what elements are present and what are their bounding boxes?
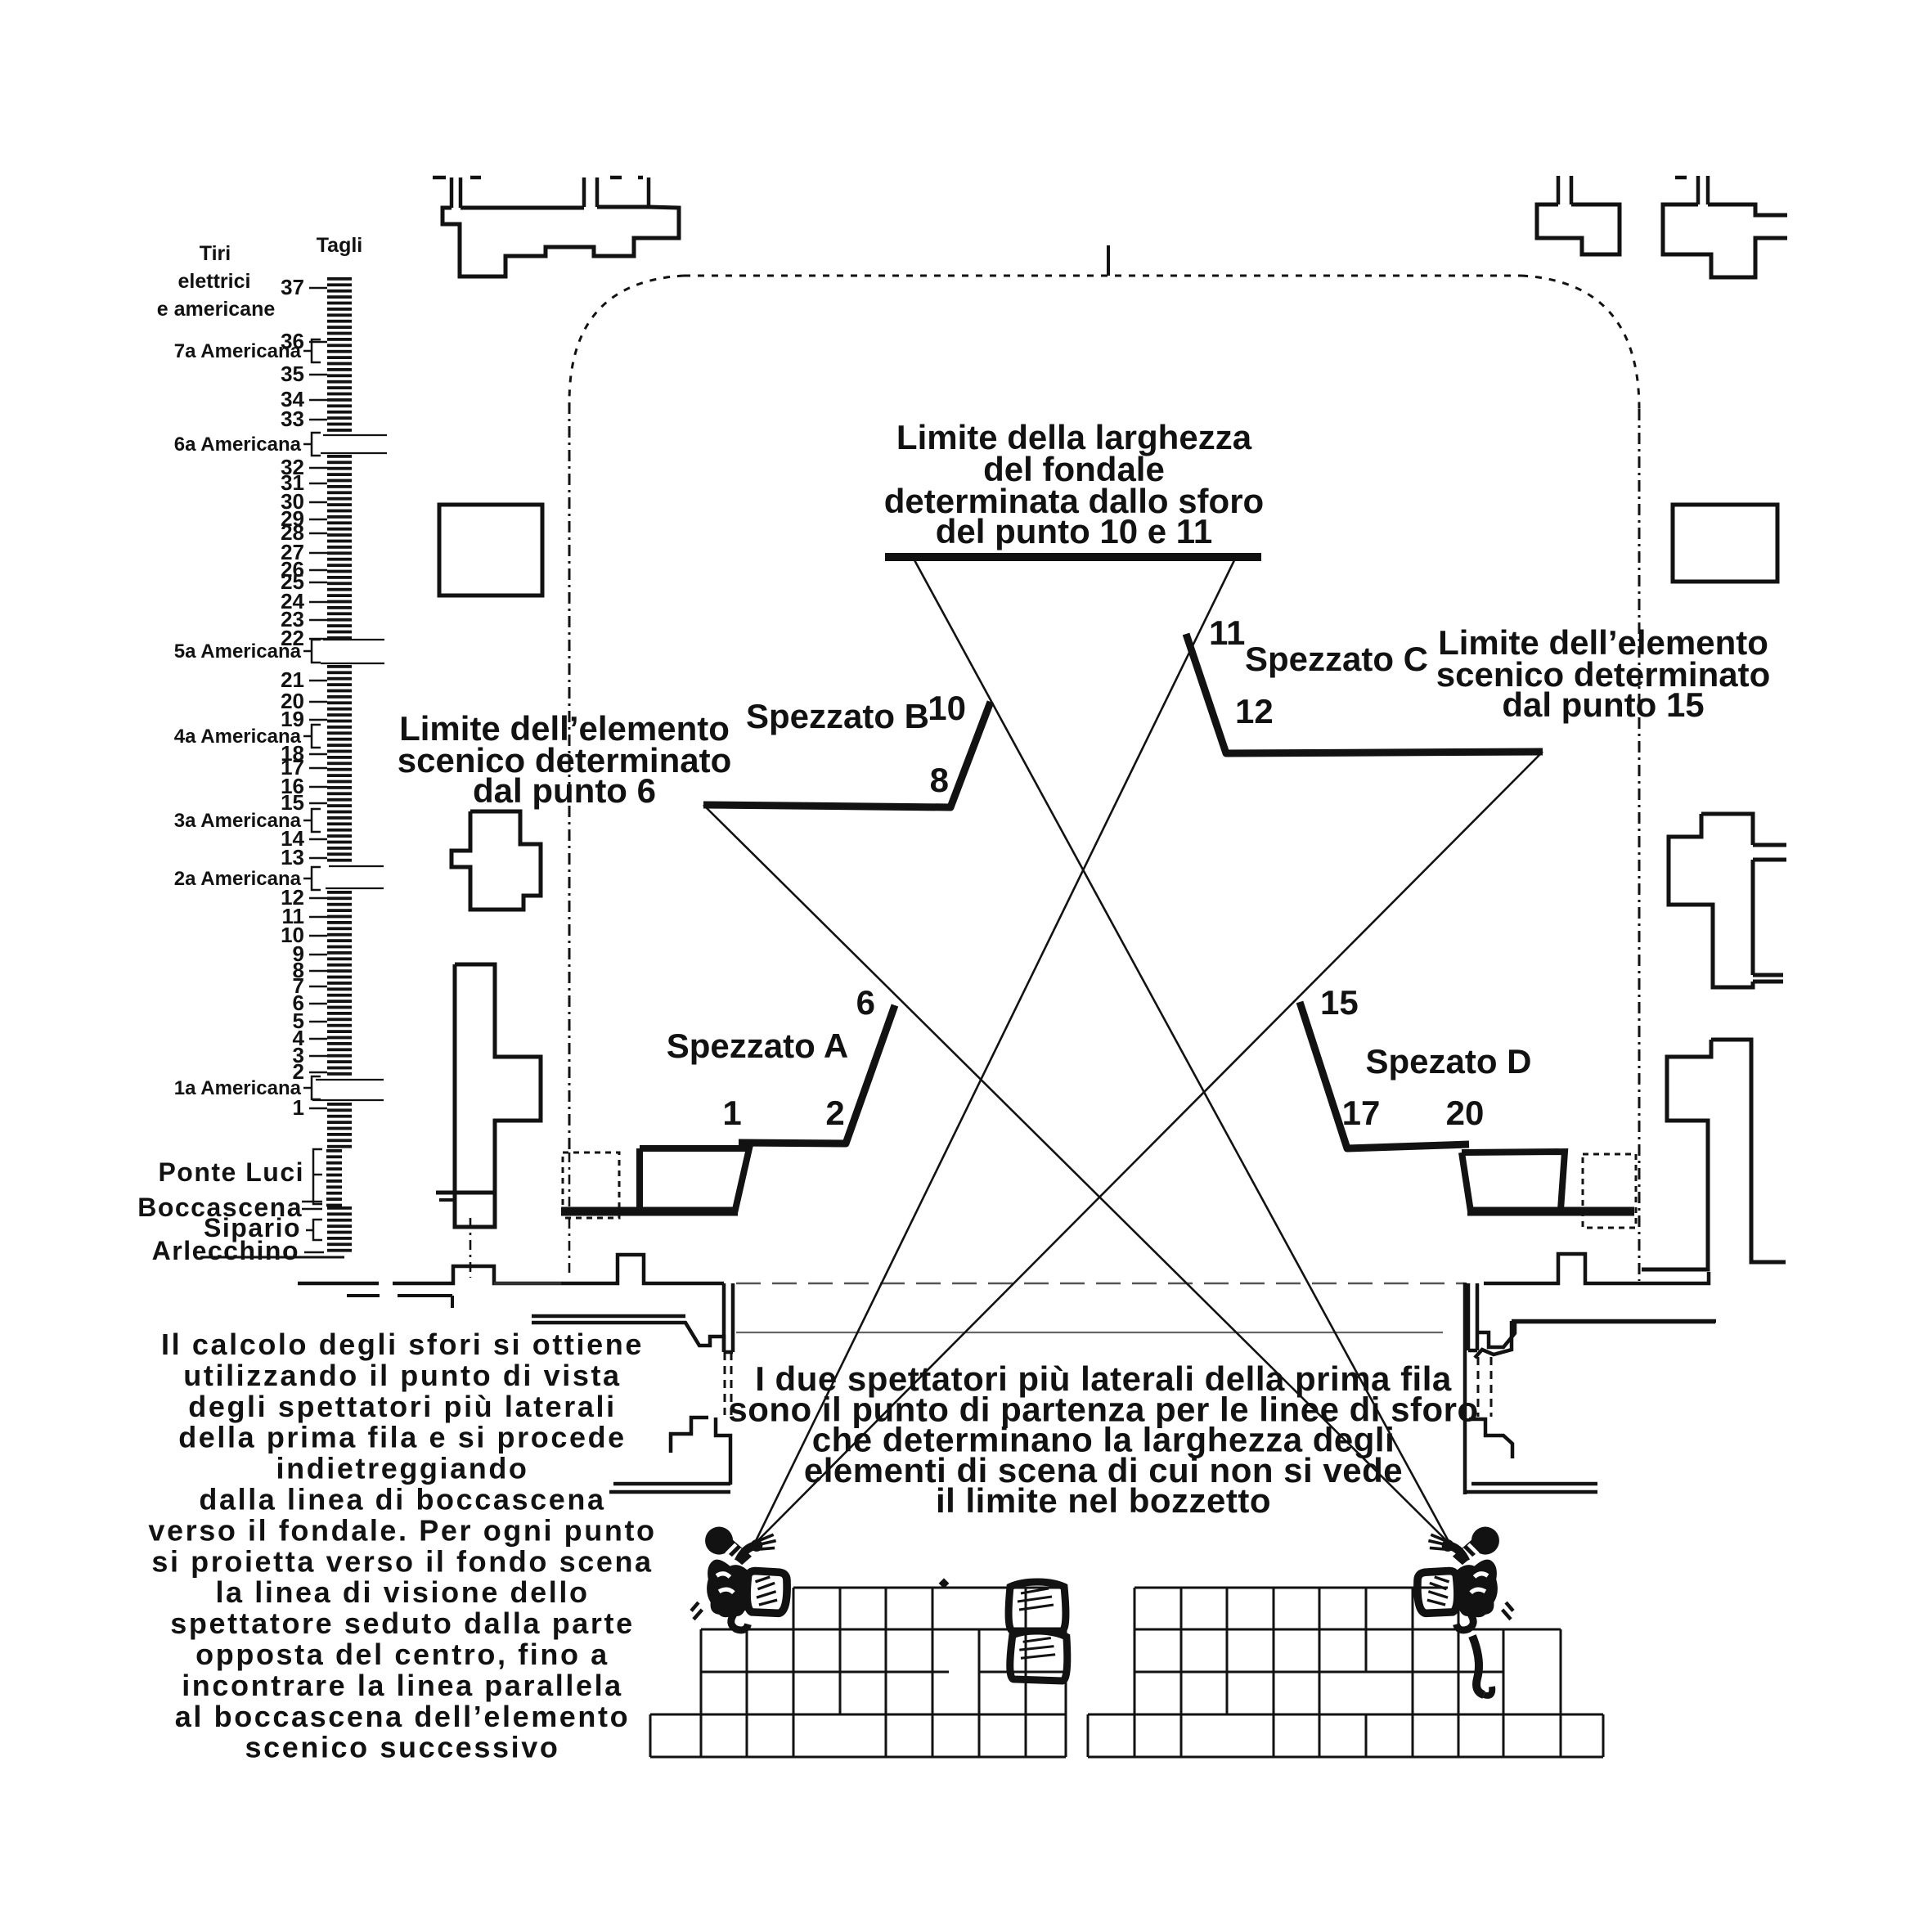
svg-text:35: 35 xyxy=(281,362,304,386)
svg-text:al boccascena dell’elemento: al boccascena dell’elemento xyxy=(175,1700,630,1733)
svg-text:dalla linea di boccascena: dalla linea di boccascena xyxy=(199,1483,605,1516)
svg-text:6a Americana: 6a Americana xyxy=(174,434,302,456)
svg-text:12: 12 xyxy=(1235,692,1274,730)
svg-text:il limite nel bozzetto: il limite nel bozzetto xyxy=(936,1481,1271,1520)
svg-text:elettrici: elettrici xyxy=(178,270,251,293)
svg-text:opposta del centro, fino a: opposta del centro, fino a xyxy=(195,1638,609,1671)
svg-text:15: 15 xyxy=(1320,983,1359,1022)
svg-text:10: 10 xyxy=(928,689,966,727)
svg-text:indietreggiando: indietreggiando xyxy=(276,1452,529,1485)
svg-text:Tagli: Tagli xyxy=(317,234,362,257)
svg-text:Spezzato B: Spezzato B xyxy=(746,697,929,735)
svg-text:Tiri: Tiri xyxy=(200,242,231,265)
svg-text:13: 13 xyxy=(281,845,304,869)
svg-text:37: 37 xyxy=(281,275,304,299)
svg-text:3a Americana: 3a Americana xyxy=(174,810,302,832)
svg-text:e americane: e americane xyxy=(157,298,276,321)
svg-text:della prima fila e si procede: della prima fila e si procede xyxy=(178,1421,627,1454)
svg-text:4a Americana: 4a Americana xyxy=(174,726,302,748)
svg-text:la linea di visione dello: la linea di visione dello xyxy=(215,1575,589,1609)
svg-text:dal punto 6: dal punto 6 xyxy=(473,771,656,810)
svg-text:1: 1 xyxy=(722,1094,741,1132)
svg-text:7a Americana: 7a Americana xyxy=(174,340,302,362)
svg-text:Spezzato A: Spezzato A xyxy=(667,1027,848,1065)
svg-text:utilizzando il punto di vista: utilizzando il punto di vista xyxy=(183,1359,621,1392)
svg-text:17: 17 xyxy=(1342,1094,1381,1132)
svg-text:Spezzato C: Spezzato C xyxy=(1245,640,1428,678)
svg-text:degli spettatori più laterali: degli spettatori più laterali xyxy=(188,1390,616,1423)
svg-text:11: 11 xyxy=(1209,613,1245,652)
svg-text:6: 6 xyxy=(856,983,875,1022)
svg-text:2a Americana: 2a Americana xyxy=(174,868,302,890)
svg-text:1a Americana: 1a Americana xyxy=(174,1077,302,1099)
svg-text:incontrare la linea parallela: incontrare la linea parallela xyxy=(182,1669,623,1702)
svg-text:spettatore seduto dalla parte: spettatore seduto dalla parte xyxy=(170,1606,635,1640)
svg-text:Spezato D: Spezato D xyxy=(1365,1042,1531,1081)
svg-text:8: 8 xyxy=(930,761,949,799)
svg-text:33: 33 xyxy=(281,407,304,431)
svg-text:5a Americana: 5a Americana xyxy=(174,640,302,663)
svg-text:dal punto 15: dal punto 15 xyxy=(1502,685,1704,724)
svg-text:del punto 10 e 11: del punto 10 e 11 xyxy=(936,512,1212,550)
svg-text:20: 20 xyxy=(1446,1094,1485,1132)
svg-text:si proietta verso il fondo sce: si proietta verso il fondo scena xyxy=(151,1544,653,1578)
svg-text:Il calcolo degli sfori si otti: Il calcolo degli sfori si ottiene xyxy=(161,1328,644,1361)
svg-text:Arlecchino: Arlecchino xyxy=(152,1236,299,1265)
svg-text:scenico successivo: scenico successivo xyxy=(245,1731,559,1764)
svg-text:2: 2 xyxy=(825,1094,844,1132)
svg-text:Ponte Luci: Ponte Luci xyxy=(158,1157,304,1187)
svg-text:verso il fondale. Per ogni pun: verso il fondale. Per ogni punto xyxy=(148,1513,656,1547)
